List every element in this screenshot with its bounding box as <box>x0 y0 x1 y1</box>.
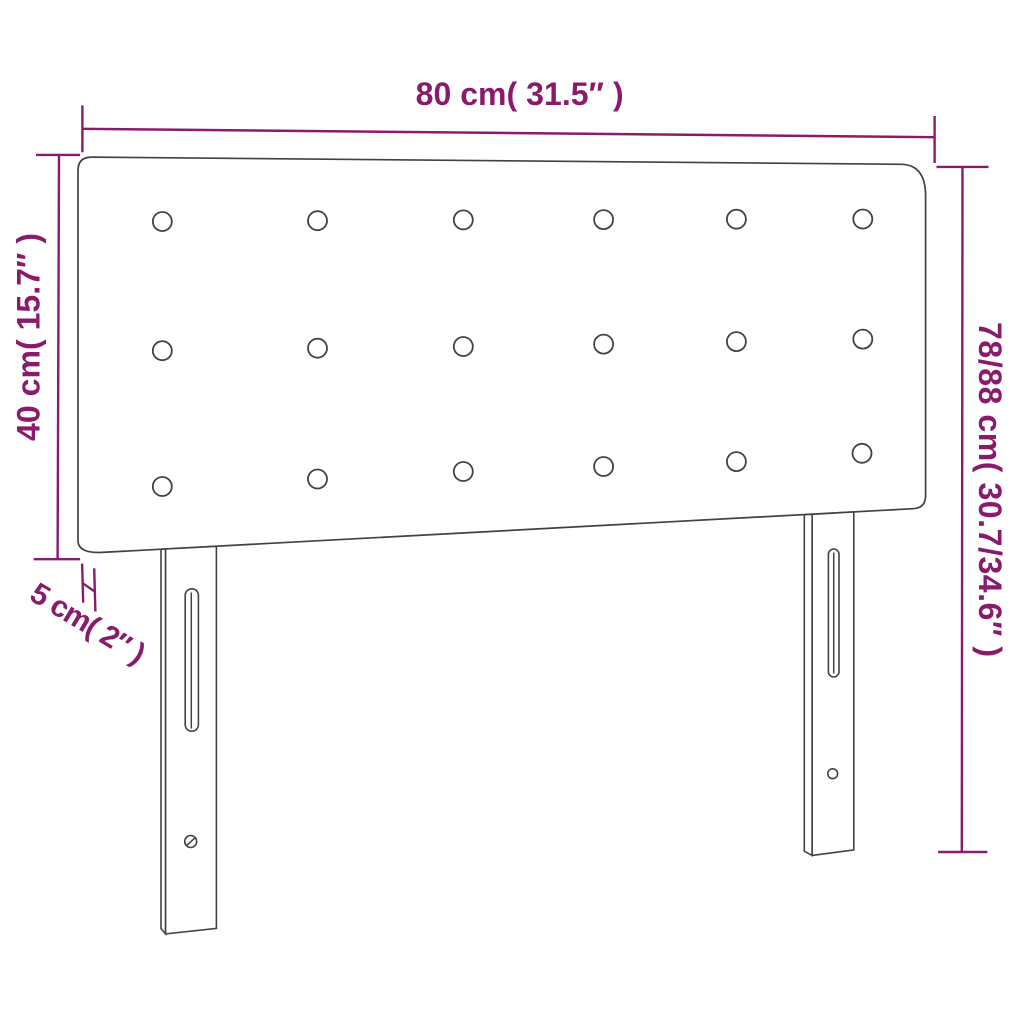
svg-text:80 cm( 31.5″ ): 80 cm( 31.5″ ) <box>416 76 624 112</box>
svg-text:40 cm( 15.7″ ): 40 cm( 15.7″ ) <box>11 233 47 441</box>
svg-text:78/88 cm( 30.7/34.6″ ): 78/88 cm( 30.7/34.6″ ) <box>972 322 1008 657</box>
